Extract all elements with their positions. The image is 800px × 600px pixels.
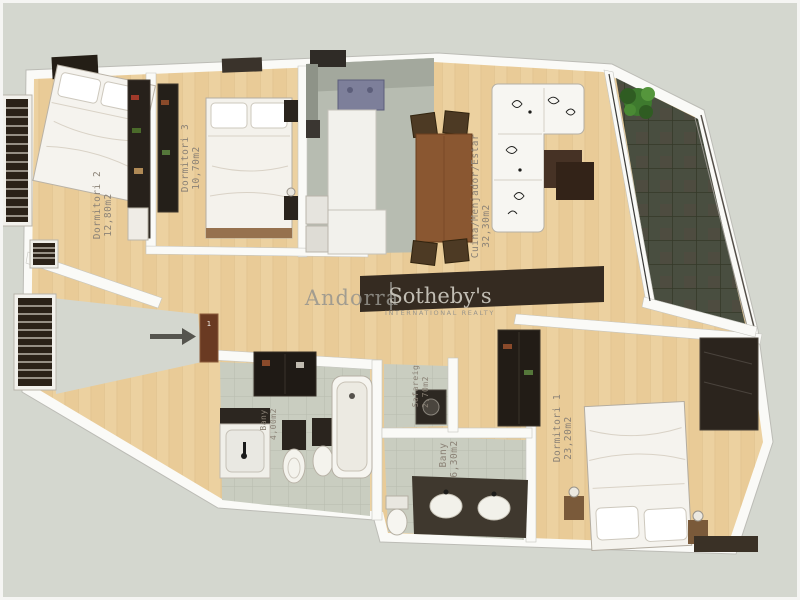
svg-text:Dormitori 1: Dormitori 1 bbox=[552, 394, 563, 462]
kitchen-stove bbox=[338, 80, 384, 110]
pillow bbox=[596, 506, 640, 540]
dorm3-nightstand bbox=[284, 196, 298, 220]
drain bbox=[349, 393, 355, 399]
faucet bbox=[241, 453, 247, 459]
entry-door-label: 1 bbox=[207, 320, 211, 328]
window-blinds-2 bbox=[30, 240, 58, 268]
wardrobe-item bbox=[162, 150, 170, 155]
svg-text:6,30m2: 6,30m2 bbox=[449, 440, 460, 477]
niche-item bbox=[262, 360, 270, 366]
dorm3-nightstand bbox=[284, 100, 298, 122]
pillow bbox=[251, 103, 287, 128]
sink-basin bbox=[478, 496, 510, 520]
kitchen-cabinet bbox=[306, 64, 318, 122]
window-blinds-1 bbox=[2, 95, 32, 226]
bathtub bbox=[332, 376, 372, 478]
svg-text:2,70m2: 2,70m2 bbox=[421, 376, 430, 408]
wall-laundry-right bbox=[448, 358, 458, 432]
wall-bath-divider bbox=[372, 360, 382, 520]
bed-footboard bbox=[206, 228, 292, 238]
top-wall-lintel bbox=[222, 57, 262, 72]
dorm1-bed bbox=[584, 401, 691, 550]
burner bbox=[367, 87, 373, 93]
pillow bbox=[211, 103, 247, 128]
svg-text:32,30m2: 32,30m2 bbox=[481, 204, 492, 248]
dining-chair bbox=[443, 239, 469, 263]
dorm1-bottom-window bbox=[694, 536, 758, 552]
wardrobe-item bbox=[131, 95, 139, 100]
svg-text:23,20m2: 23,20m2 bbox=[563, 416, 574, 460]
dining-set bbox=[411, 111, 472, 266]
kitchen-island-ext bbox=[328, 210, 386, 254]
svg-text:4,00m2: 4,00m2 bbox=[269, 408, 278, 440]
toilet bbox=[386, 496, 408, 535]
faucet bbox=[492, 492, 497, 497]
svg-text:Cuina/Menjador/Estar: Cuina/Menjador/Estar bbox=[470, 134, 481, 258]
floor-plan-scan: 1 Andorra Sotheby's INTERNATIONAL REALTY… bbox=[0, 0, 800, 600]
kitchen-appliance bbox=[306, 120, 320, 138]
svg-text:Bany: Bany bbox=[438, 443, 449, 468]
svg-text:Safareig: Safareig bbox=[411, 365, 420, 408]
entry-arrow-icon bbox=[150, 334, 182, 339]
svg-text:Bany: Bany bbox=[259, 409, 268, 430]
dining-chair bbox=[411, 241, 438, 266]
watermark-brand: Andorra bbox=[304, 286, 399, 310]
dorm2-dresser bbox=[128, 208, 148, 240]
svg-text:12,80m2: 12,80m2 bbox=[103, 193, 114, 237]
lamp bbox=[287, 188, 295, 196]
svg-text:Dormitori 2: Dormitori 2 bbox=[92, 171, 103, 239]
watermark-subtitle: INTERNATIONAL REALTY bbox=[385, 309, 495, 317]
sink-basin bbox=[430, 494, 462, 518]
coffee-table bbox=[556, 162, 594, 200]
niche-item bbox=[296, 362, 304, 368]
watermark-name: Sotheby's bbox=[388, 284, 491, 308]
pillow bbox=[644, 508, 688, 542]
svg-text:Dormitori 3: Dormitori 3 bbox=[180, 124, 191, 192]
window-blinds-3 bbox=[14, 294, 56, 390]
floor-plan-drawing: 1 Andorra Sotheby's INTERNATIONAL REALTY… bbox=[0, 0, 800, 600]
wardrobe-item bbox=[134, 168, 143, 174]
dining-chair bbox=[443, 111, 469, 135]
wardrobe-item bbox=[161, 100, 169, 105]
dorm1-window bbox=[700, 338, 758, 430]
kitchen-fridge bbox=[306, 196, 328, 224]
lamp bbox=[693, 511, 703, 521]
wardrobe-item bbox=[524, 370, 533, 375]
svg-text:10,70m2: 10,70m2 bbox=[191, 146, 202, 190]
dorm3-bed bbox=[206, 98, 292, 238]
wardrobe-item bbox=[132, 128, 141, 133]
faucet bbox=[444, 490, 449, 495]
lamp bbox=[569, 487, 579, 497]
kitchen-unit bbox=[306, 226, 328, 252]
vanity-counter bbox=[412, 476, 528, 538]
burner bbox=[347, 87, 353, 93]
faucet-stem bbox=[243, 442, 246, 454]
wardrobe-item bbox=[503, 344, 512, 349]
dorm1-nightstand bbox=[564, 496, 584, 520]
